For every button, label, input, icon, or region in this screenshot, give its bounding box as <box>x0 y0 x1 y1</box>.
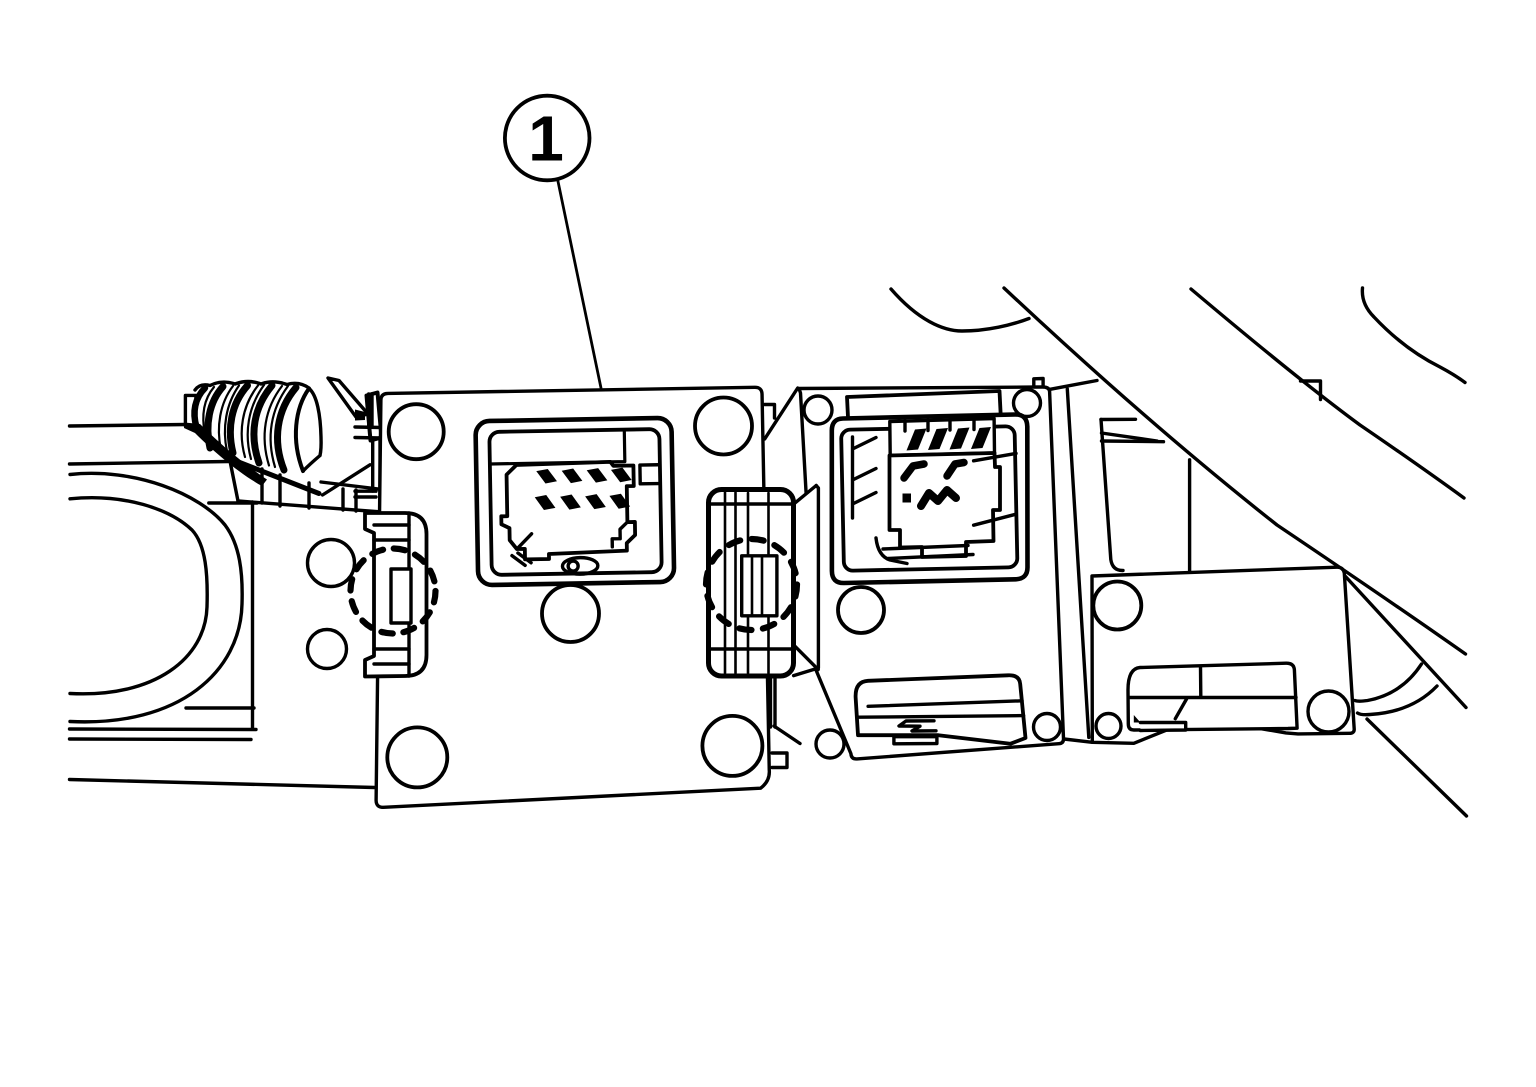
svg-text:1: 1 <box>528 103 564 175</box>
